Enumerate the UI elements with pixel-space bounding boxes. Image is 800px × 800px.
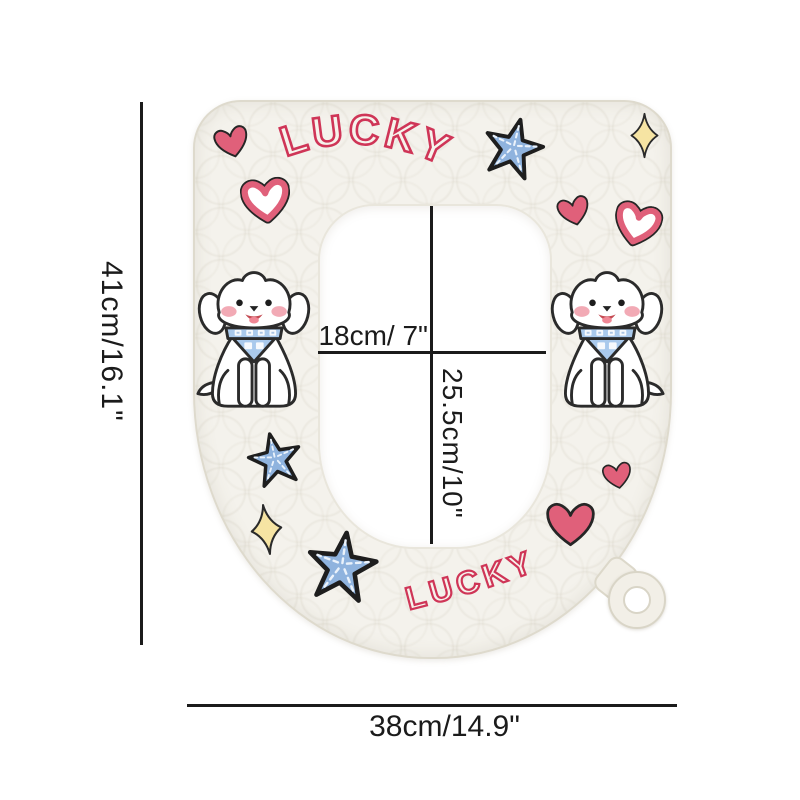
- inner-width-label: 18cm/ 7": [280, 320, 428, 352]
- lucky-text-top: LUCKY: [274, 106, 462, 186]
- outer-width-label: 38cm/14.9": [332, 710, 557, 744]
- sparkle-icon: [630, 112, 659, 159]
- hang-ring: [608, 571, 666, 629]
- heart-icon: [600, 460, 635, 493]
- starfish-icon: [241, 425, 310, 494]
- inner-height-label: 25.5cm/10": [436, 368, 468, 519]
- dimension-line-outer-width: [187, 704, 677, 707]
- product-dimension-diagram: LUCKY LUCKY 41cm/16.1" 38cm/14.9" 18cm/ …: [0, 0, 800, 800]
- heart-outline-icon: [239, 176, 294, 227]
- heart-icon: [545, 501, 596, 548]
- svg-text:LUCKY: LUCKY: [274, 106, 460, 174]
- dog-illustration-right: [549, 268, 665, 413]
- svg-text:LUCKY: LUCKY: [402, 546, 541, 617]
- dimension-line-inner-height: [430, 206, 433, 544]
- lucky-text-bottom: LUCKY: [401, 546, 555, 624]
- starfish-icon: [299, 523, 385, 609]
- seat-opening: [318, 204, 552, 549]
- outer-height-label: 41cm/16.1": [94, 261, 128, 422]
- dimension-line-outer-height: [140, 102, 143, 645]
- lucky-bottom-label: LUCKY: [402, 546, 541, 617]
- hang-ring-hole: [623, 586, 651, 614]
- lucky-top-label: LUCKY: [274, 106, 460, 174]
